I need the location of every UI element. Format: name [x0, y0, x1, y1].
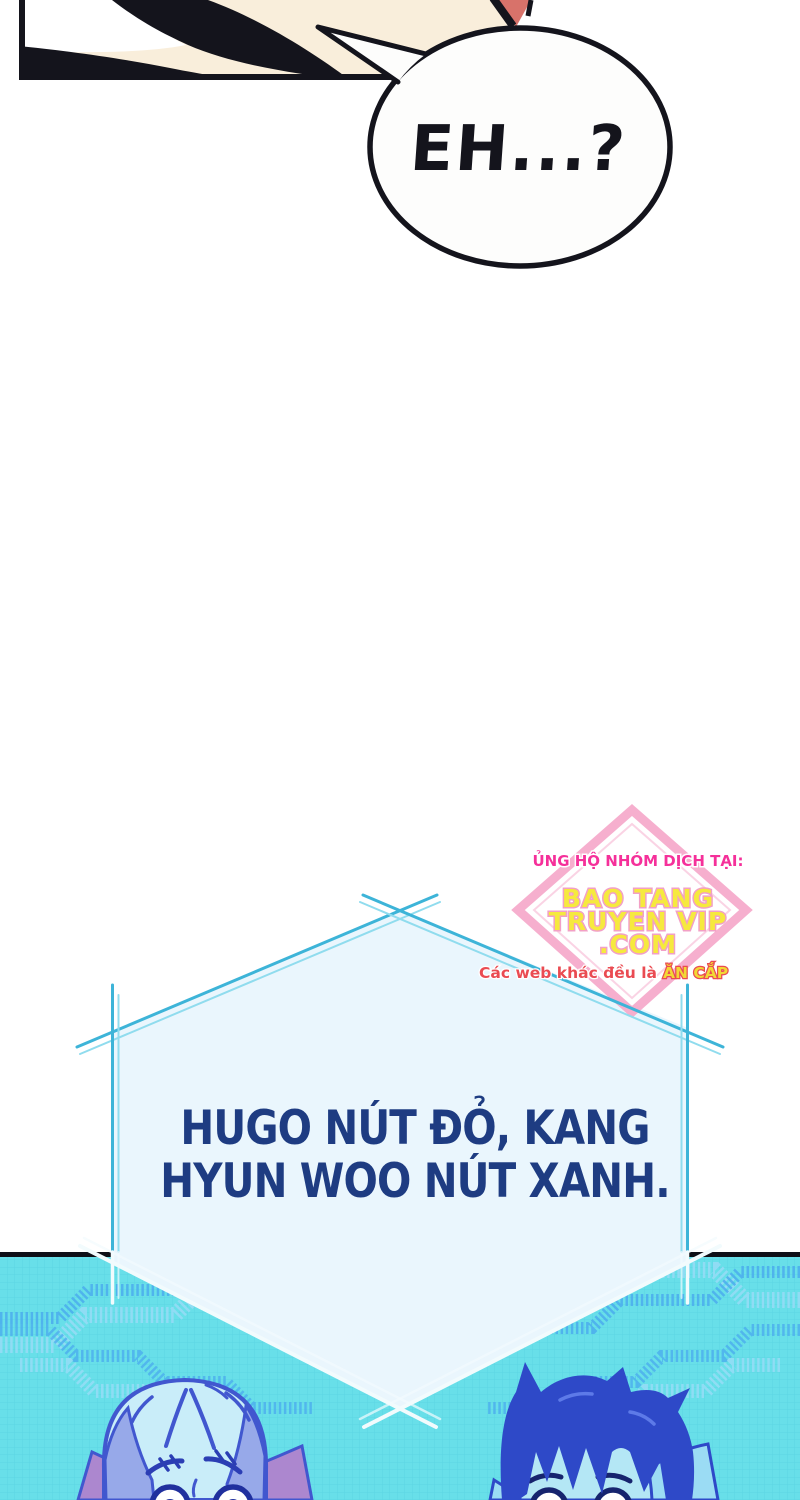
- watermark-support-line: ỦNG HỘ NHÓM DỊCH TẠI:: [532, 849, 743, 870]
- speech-bubble-text: EH...?: [408, 111, 629, 185]
- watermark-warning-prefix: Các web khác đều là: [479, 963, 657, 982]
- speech-bubble: EH...?: [318, 27, 670, 266]
- watermark-site-line3: .COM: [599, 930, 677, 959]
- hex-text-line1: HUGO NÚT ĐỎ, KANG: [180, 1095, 649, 1156]
- comic-page: EH...?: [0, 0, 800, 1500]
- red-accent-right-edge: [528, 0, 531, 16]
- watermark-warning-emphasis: ĂN CẮP: [663, 961, 728, 982]
- hex-text-line2: HYUN WOO NÚT XANH.: [160, 1152, 669, 1209]
- comic-art: EH...?: [0, 0, 800, 1500]
- panel-border-bottom: [19, 74, 419, 80]
- hex-bubble-text: HUGO NÚT ĐỎ, KANG HYUN WOO NÚT XANH.: [160, 1095, 669, 1209]
- panel-border-left: [19, 0, 25, 80]
